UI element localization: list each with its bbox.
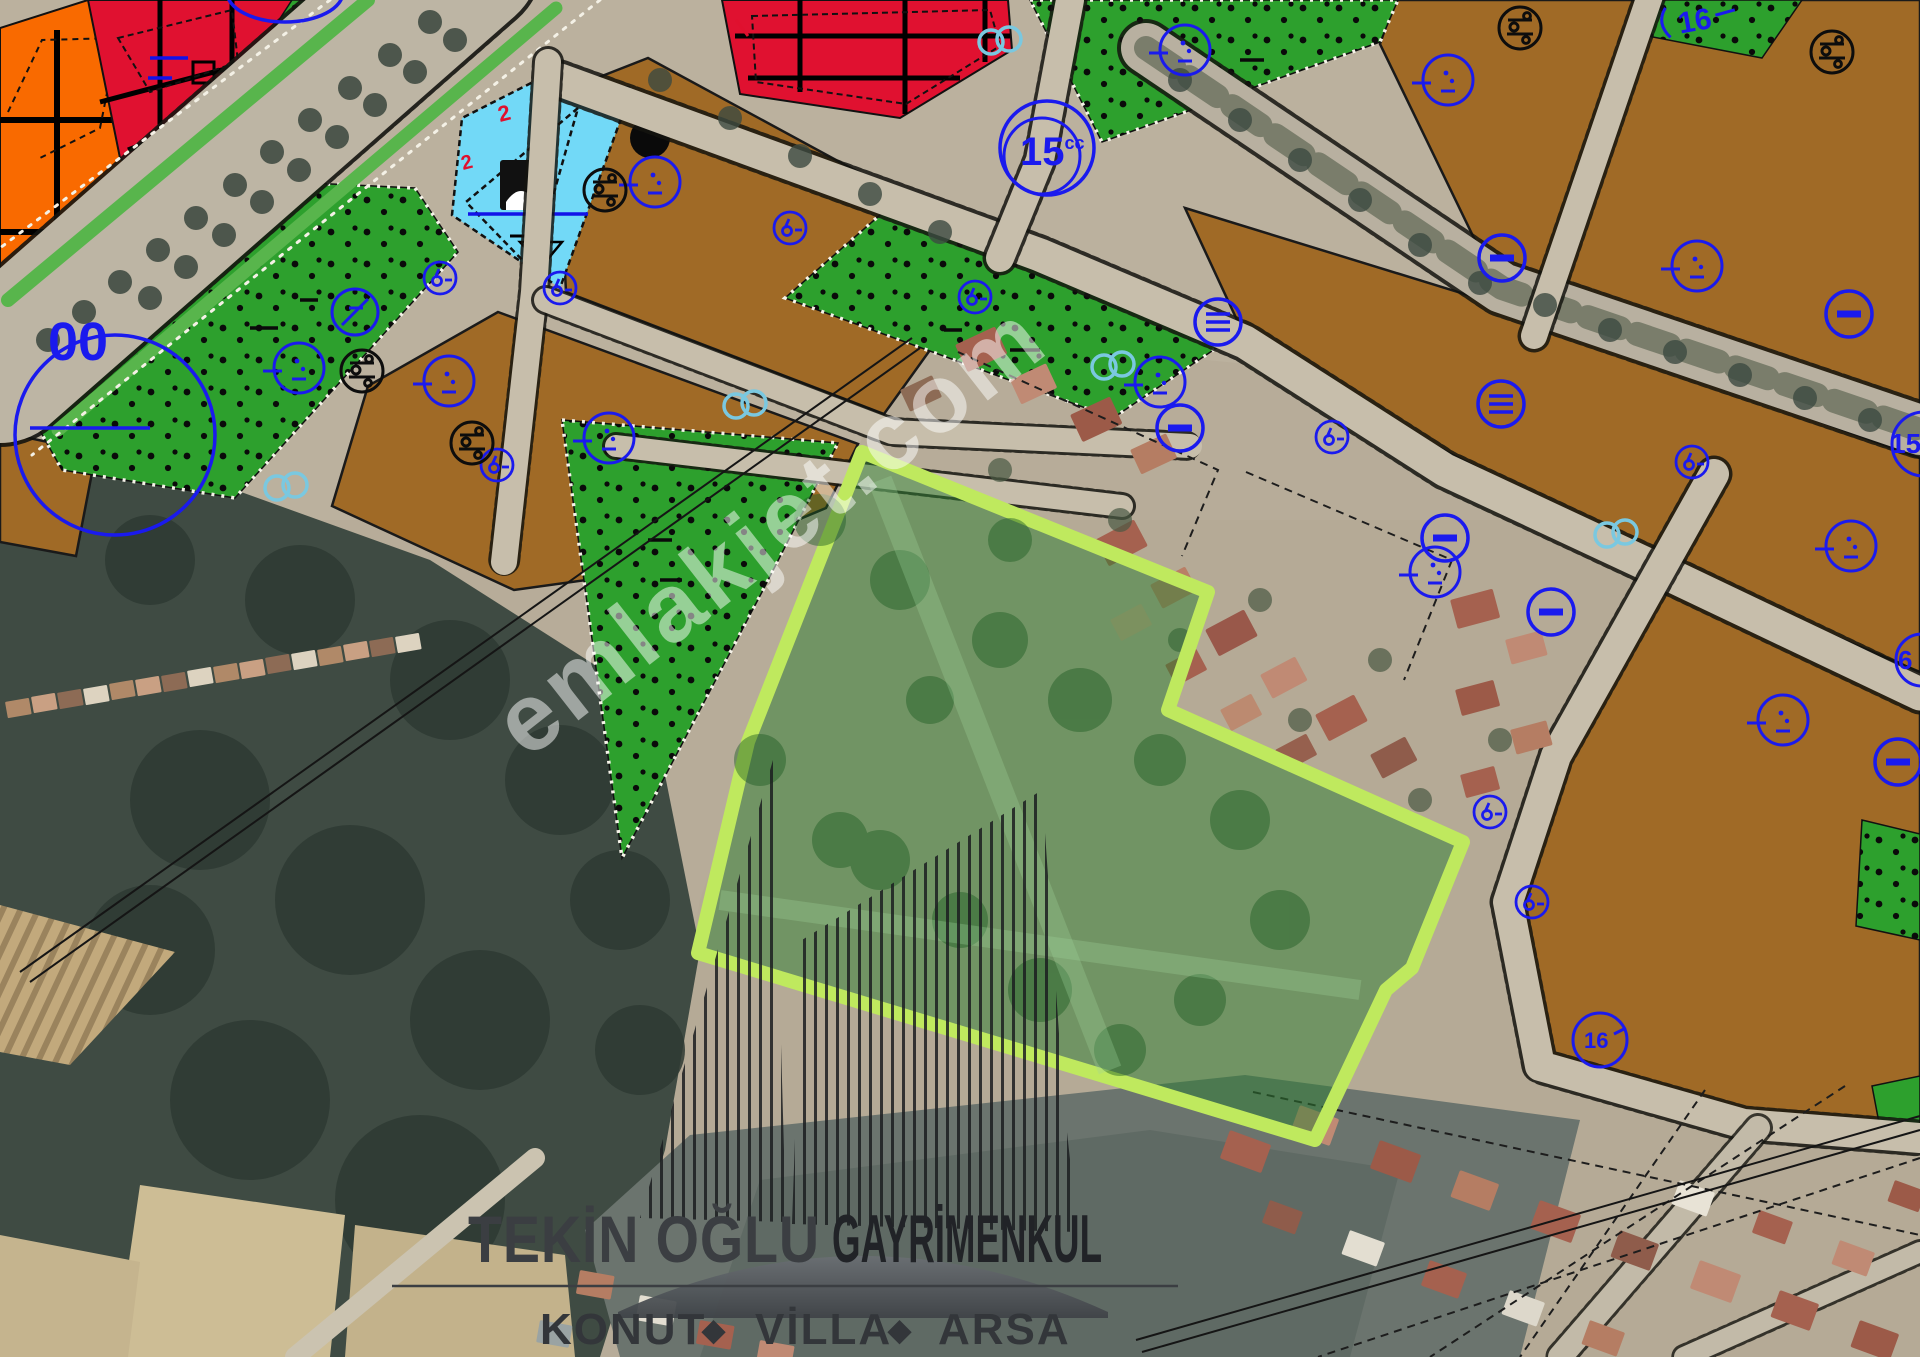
svg-text:15: 15 [1890,428,1920,459]
map-canvas[interactable]: 2 2 [0,0,1920,1357]
logo-brand-bold: GAYRİMENKUL [832,1201,1102,1277]
screenshot-root: 2 2 [0,0,1920,1357]
svg-text:16: 16 [1584,1028,1608,1053]
label-00: 00 [48,312,108,372]
svg-text:6: 6 [1898,645,1912,675]
svg-text:16: 16 [1676,2,1715,40]
logo-tagline: KONUT◆VİLLA◆ARSA [540,1305,1071,1354]
logo-brand-light: TEKİN OĞLU [468,1202,820,1276]
